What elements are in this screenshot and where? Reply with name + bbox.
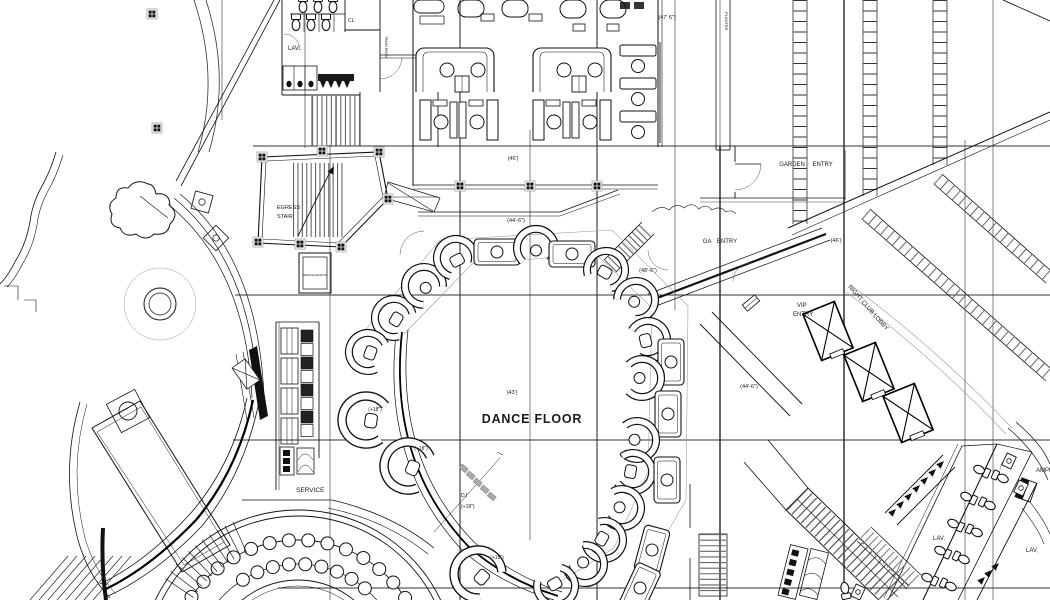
- dineH-symbol: [533, 100, 611, 140]
- dineU-symbol: [416, 48, 494, 92]
- label-planter: PLANTER: [724, 12, 729, 31]
- wc-symbol: [939, 578, 958, 593]
- tri-symbol: [328, 81, 334, 89]
- wc-symbol: [307, 14, 316, 31]
- pod18-symbol: [339, 393, 386, 446]
- sink-symbol: [851, 584, 866, 600]
- dim-44-6-walk: (44'-6"): [507, 218, 525, 224]
- bottom-corridor: [690, 484, 829, 600]
- walls-layer: [0, 0, 1050, 600]
- dim-46-garden: (46'): [831, 238, 842, 244]
- tri-symbol: [320, 81, 326, 89]
- dim-plus18-2: (+18"): [414, 446, 428, 452]
- label-service-elevator: SERVICE ELEVATOR: [303, 274, 328, 277]
- col-symbol: [317, 146, 327, 156]
- wc-symbol: [839, 582, 851, 600]
- pod18-symbol: [444, 540, 506, 600]
- sofaV-symbol: [654, 457, 680, 503]
- label-egress-1: EGRESS: [277, 205, 300, 211]
- label-closet: CL: [348, 18, 355, 24]
- pod18-symbol: [377, 435, 433, 495]
- sofaV-symbol: [474, 239, 520, 265]
- label-lav-lower-left: LAV.: [933, 536, 945, 542]
- service-elevator: [299, 253, 331, 293]
- garden-walk: [418, 190, 736, 216]
- col-symbol: [257, 152, 267, 162]
- dim-46-walk: (46'): [508, 156, 519, 162]
- restroom-upper: [282, 0, 438, 147]
- label-corridor-tag: TRASH ROOM: [384, 36, 388, 58]
- label-vip-2: ENTRY: [793, 312, 813, 318]
- col-symbol: [525, 181, 535, 191]
- wc-symbol: [329, 0, 338, 13]
- col-symbol: [336, 242, 346, 252]
- label-night-club-lobby: NIGHT CLUB LOBBY: [846, 284, 889, 332]
- dining-area: [413, 0, 662, 189]
- dim-47-6: (47' 6"): [658, 15, 676, 21]
- col-symbol: [152, 123, 162, 133]
- dim-48-6: (48'-6"): [639, 268, 657, 274]
- dim-plus18-4: (+18"): [490, 555, 504, 561]
- wc-symbol: [965, 524, 984, 539]
- lobby-escalator-2: [938, 179, 1050, 278]
- podS-symbol: [533, 565, 582, 600]
- wc-symbol: [314, 0, 323, 13]
- vip-corridor: [700, 263, 802, 416]
- louver-strips: [793, 0, 947, 224]
- wc-symbol: [952, 551, 971, 566]
- label-garden-entry: GARDEN ENTRY: [779, 162, 833, 168]
- col-symbol: [374, 147, 384, 157]
- diamond-symbol: [191, 191, 213, 213]
- dim-plus18-3: (+18"): [461, 504, 475, 510]
- dim-44-6-vip: (44'-6"): [740, 384, 758, 390]
- floor-plan-page: LAV. CL TRASH ROOM PLANTER EGRESS STAIR …: [0, 0, 1050, 600]
- podS-symbol: [344, 328, 388, 375]
- sink-symbol: [1002, 453, 1017, 469]
- col-symbol: [455, 181, 465, 191]
- garden-entry-room: [700, 146, 845, 202]
- podC-symbol: [629, 359, 661, 397]
- wc-symbol: [978, 497, 997, 512]
- wc-symbol: [946, 517, 965, 532]
- dim-plus18-1: (+18"): [368, 407, 382, 413]
- lav-lower-block: [884, 422, 1050, 600]
- wc-symbol: [933, 544, 952, 559]
- tri-symbol: [336, 81, 342, 89]
- label-dance-floor: DANCE FLOOR: [482, 412, 582, 426]
- elev-symbol: [883, 383, 934, 444]
- wc-symbol: [292, 14, 301, 31]
- dineH-symbol: [420, 100, 498, 140]
- wc-symbol: [991, 470, 1010, 485]
- dim-43: (43'): [507, 390, 518, 396]
- elev-symbol: [803, 301, 854, 362]
- label-service: SERVICE: [296, 487, 325, 494]
- dineU-symbol: [533, 48, 611, 92]
- wc-symbol: [299, 0, 308, 13]
- label-vip-1: VIP: [797, 303, 807, 309]
- sofaV-symbol: [655, 391, 681, 437]
- label-lav-upper: LAV.: [288, 46, 300, 52]
- col-symbol: [295, 239, 305, 249]
- label-egress-2: STAIR: [277, 214, 293, 220]
- label-ga-entry: GA ENTRY: [703, 239, 737, 245]
- tri-symbol: [344, 81, 350, 89]
- podC-symbol: [563, 541, 612, 591]
- col-symbol: [592, 181, 602, 191]
- col-symbol: [253, 237, 263, 247]
- col-symbol: [147, 9, 157, 19]
- label-amphitheater: AMPH: [1036, 468, 1050, 474]
- podS-symbol: [430, 232, 479, 279]
- lobby-diagonals: [788, 0, 1050, 434]
- fixtures-layer: [30, 0, 1028, 600]
- floor-plan-canvas: LAV. CL TRASH ROOM PLANTER EGRESS STAIR …: [0, 0, 1050, 600]
- col-symbol: [383, 194, 393, 204]
- wc-symbol: [322, 14, 331, 31]
- label-dj: DJ: [461, 493, 468, 499]
- label-lav-lower-right: LAV,: [1026, 548, 1038, 554]
